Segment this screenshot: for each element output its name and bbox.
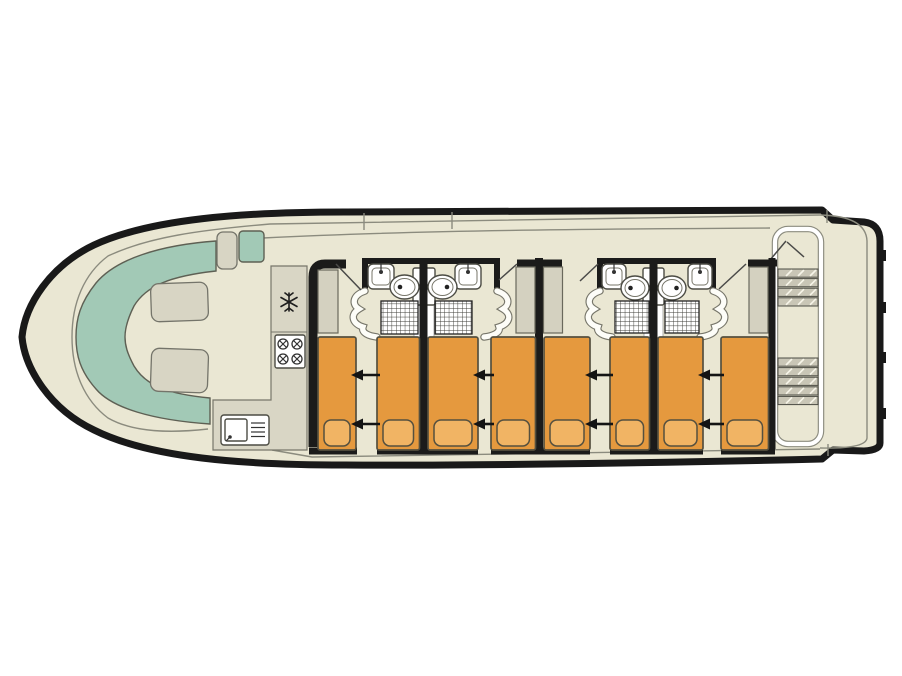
helm-seat-teal bbox=[239, 231, 264, 262]
shower-cabin-1 bbox=[381, 301, 418, 334]
bed-8 bbox=[721, 337, 769, 450]
toilet-cabin-2 bbox=[428, 275, 457, 299]
toilet-cabin-4 bbox=[658, 276, 686, 300]
deck-plan-canvas bbox=[0, 0, 902, 676]
wardrobe-cabin-4 bbox=[749, 267, 768, 333]
boat-deck-plan bbox=[0, 0, 902, 676]
shower-cabin-4 bbox=[665, 301, 699, 333]
helm-seat-beige bbox=[217, 232, 237, 269]
bed-1 bbox=[318, 337, 356, 450]
beds bbox=[318, 337, 769, 450]
toilet-cabin-3 bbox=[621, 276, 649, 300]
bed-4 bbox=[491, 337, 536, 450]
bed-7 bbox=[658, 337, 703, 450]
shower-cabin-2 bbox=[435, 301, 472, 334]
bed-5 bbox=[544, 337, 590, 450]
hob-four-burners bbox=[275, 335, 305, 368]
bench-cushion-bottom bbox=[150, 348, 208, 393]
wardrobe-cabin-1 bbox=[318, 270, 338, 333]
bed-3 bbox=[428, 337, 478, 450]
bench-cushion-top bbox=[150, 282, 208, 322]
washbasin-cabin-4 bbox=[688, 263, 712, 289]
shower-cabin-3 bbox=[615, 301, 649, 333]
washbasin-cabin-2 bbox=[455, 263, 481, 289]
stern-stairs-bottom bbox=[778, 358, 818, 405]
bed-2 bbox=[377, 337, 420, 450]
wardrobe-cabin-3 bbox=[544, 267, 563, 333]
galley-sink-with-drainer bbox=[221, 415, 269, 445]
toilet-cabin-1 bbox=[390, 275, 419, 299]
wardrobe-cabin-2 bbox=[516, 267, 535, 333]
bed-6 bbox=[610, 337, 650, 450]
